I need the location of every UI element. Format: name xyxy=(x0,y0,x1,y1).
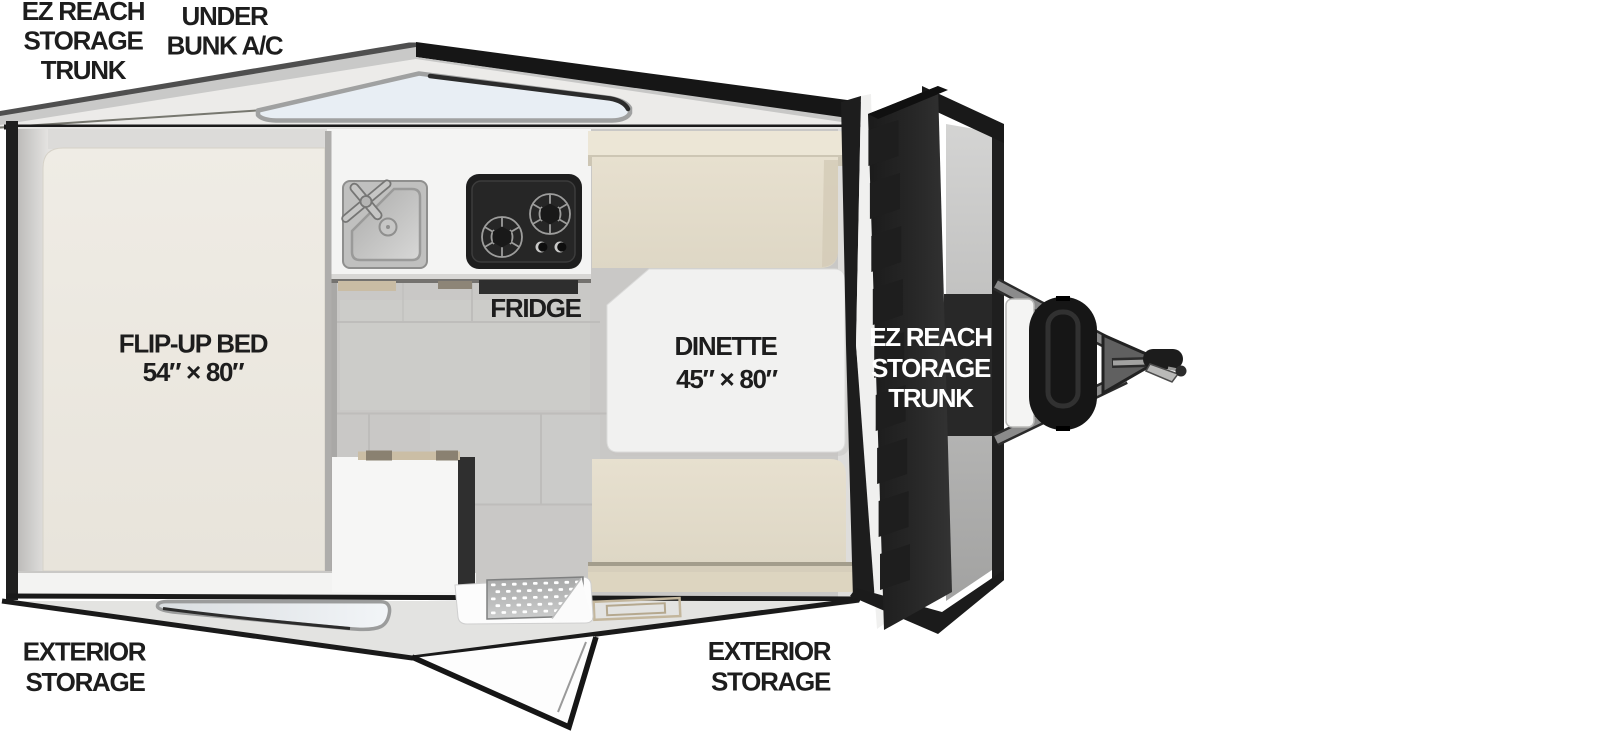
svg-text:EZ REACH: EZ REACH xyxy=(22,0,145,26)
svg-text:54″ × 80″: 54″ × 80″ xyxy=(143,357,245,387)
svg-text:FRIDGE: FRIDGE xyxy=(490,293,581,323)
svg-text:EXTERIOR: EXTERIOR xyxy=(708,636,832,666)
svg-text:TRUNK: TRUNK xyxy=(888,383,974,413)
svg-text:TRUNK: TRUNK xyxy=(41,55,127,85)
svg-text:FLIP-UP BED: FLIP-UP BED xyxy=(119,329,268,359)
svg-text:UNDER: UNDER xyxy=(182,1,269,31)
svg-text:45″ × 80″: 45″ × 80″ xyxy=(676,364,778,394)
svg-text:STORAGE: STORAGE xyxy=(871,353,991,383)
svg-text:STORAGE: STORAGE xyxy=(26,667,146,697)
svg-text:EZ REACH: EZ REACH xyxy=(869,322,992,352)
svg-text:BUNK A/C: BUNK A/C xyxy=(167,31,284,61)
svg-text:DINETTE: DINETTE xyxy=(674,331,777,361)
svg-text:STORAGE: STORAGE xyxy=(711,667,831,697)
svg-text:EXTERIOR: EXTERIOR xyxy=(23,637,147,667)
svg-text:STORAGE: STORAGE xyxy=(24,26,144,56)
